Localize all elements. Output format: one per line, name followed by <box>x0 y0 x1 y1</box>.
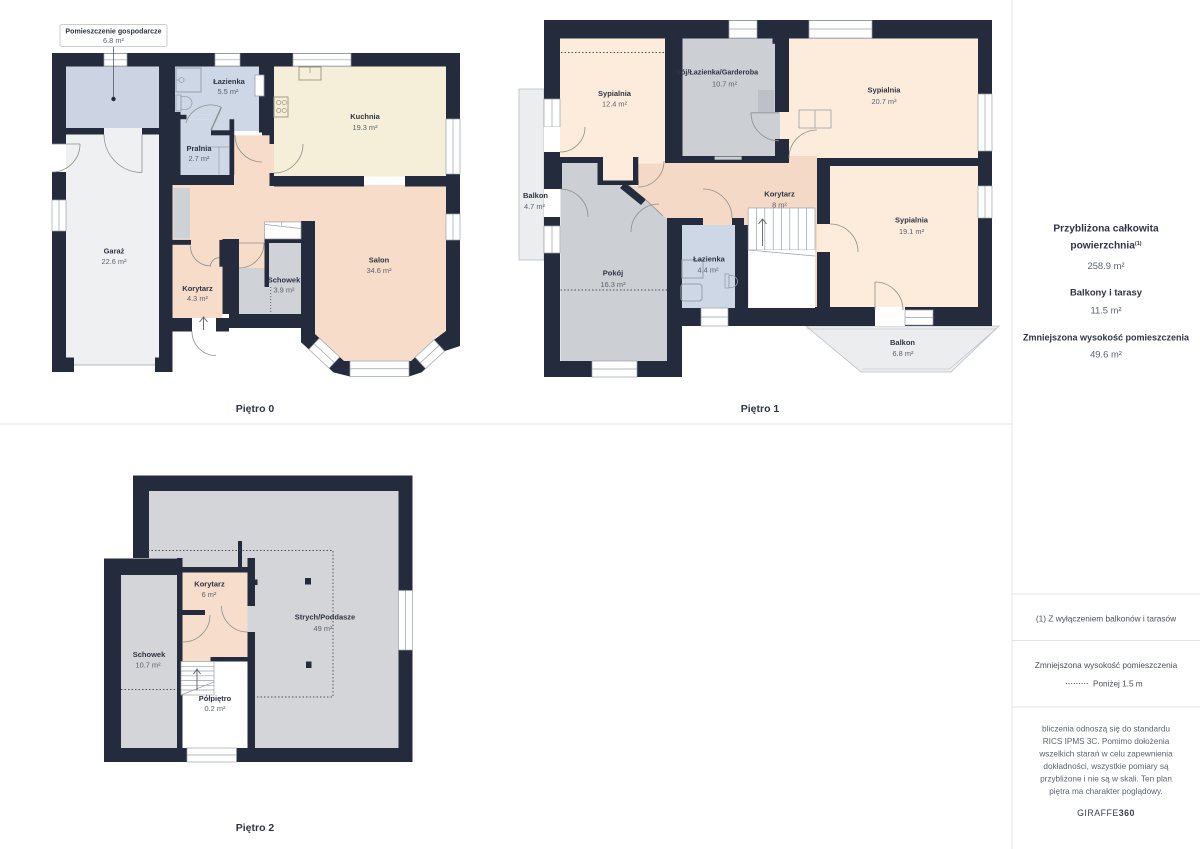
svg-text:10.7 m²: 10.7 m² <box>712 80 738 89</box>
svg-text:Balkon: Balkon <box>523 191 548 200</box>
svg-text:Piętro 1: Piętro 1 <box>741 403 780 415</box>
svg-text:Sypialnia: Sypialnia <box>895 216 929 225</box>
svg-text:19.3 m²: 19.3 m² <box>352 123 378 132</box>
svg-text:Łazienka: Łazienka <box>213 77 246 86</box>
svg-text:12.4 m²: 12.4 m² <box>602 100 628 109</box>
svg-text:Korytarz: Korytarz <box>764 190 795 199</box>
svg-text:Piętro 0: Piętro 0 <box>236 403 275 415</box>
svg-text:Przybliżona całkowita: Przybliżona całkowita <box>1053 224 1159 235</box>
svg-text:16.3 m²: 16.3 m² <box>600 280 626 289</box>
svg-text:Sypialnia: Sypialnia <box>868 86 902 95</box>
svg-text:Schowek: Schowek <box>133 650 166 659</box>
svg-text:Kuchnia: Kuchnia <box>350 112 380 121</box>
svg-text:10.7 m²: 10.7 m² <box>135 661 161 670</box>
svg-text:34.6 m²: 34.6 m² <box>366 266 392 275</box>
svg-text:5.5 m²: 5.5 m² <box>218 87 239 96</box>
svg-text:Zmniejszona wysokość pomieszcz: Zmniejszona wysokość pomieszczenia <box>1023 333 1190 343</box>
svg-text:Salon: Salon <box>369 256 390 265</box>
svg-text:11.5 m²: 11.5 m² <box>1090 305 1121 316</box>
svg-text:49.6 m²: 49.6 m² <box>1090 349 1122 360</box>
svg-text:49 m²: 49 m² <box>314 624 333 633</box>
svg-text:Korytarz: Korytarz <box>194 580 225 589</box>
svg-text:20.7 m²: 20.7 m² <box>871 97 897 106</box>
svg-text:kój/Łazienka/Garderoba: kój/Łazienka/Garderoba <box>677 68 759 77</box>
svg-text:4.3 m²: 4.3 m² <box>187 294 208 303</box>
svg-text:RICS IPMS 3C. Pomimo dołożenia: RICS IPMS 3C. Pomimo dołożenia <box>1043 737 1170 746</box>
svg-text:Pralnia: Pralnia <box>186 144 212 153</box>
svg-text:Zmniejszona wysokość pomieszcz: Zmniejszona wysokość pomieszczenia <box>1035 660 1178 670</box>
svg-text:Strych/Poddasze: Strych/Poddasze <box>295 613 355 622</box>
svg-text:Piętro 2: Piętro 2 <box>236 822 275 834</box>
svg-text:6.8 m²: 6.8 m² <box>893 349 914 358</box>
svg-text:Łazienka: Łazienka <box>693 255 726 264</box>
svg-text:8 m²: 8 m² <box>772 201 787 210</box>
svg-text:dokładności, wszystkie pomiary: dokładności, wszystkie pomiary są <box>1043 762 1169 771</box>
svg-text:6 m²: 6 m² <box>202 590 217 599</box>
svg-text:Schowek: Schowek <box>268 276 301 285</box>
svg-text:Balkony i tarasy: Balkony i tarasy <box>1070 287 1143 298</box>
svg-text:4.7 m²: 4.7 m² <box>524 202 545 211</box>
svg-text:Półpiętro: Półpiętro <box>199 694 232 703</box>
svg-text:powierzchnia(1): powierzchnia(1) <box>1070 241 1141 252</box>
svg-text:Pokój: Pokój <box>603 269 623 278</box>
svg-text:przybliżone i nie są w skali.: przybliżone i nie są w skali. Ten plan <box>1040 775 1172 784</box>
svg-text:bliczenia odnoszą się do stand: bliczenia odnoszą się do standardu <box>1042 725 1170 734</box>
svg-text:wszelkich starań w celu zapewn: wszelkich starań w celu zapewnienia <box>1038 750 1173 759</box>
svg-text:Balkon: Balkon <box>890 338 915 347</box>
svg-text:Korytarz: Korytarz <box>182 284 213 293</box>
svg-text:piętra ma charakter poglądowy.: piętra ma charakter poglądowy. <box>1049 787 1163 796</box>
svg-text:2.7 m²: 2.7 m² <box>189 154 210 163</box>
svg-text:6.8 m²: 6.8 m² <box>103 36 124 45</box>
svg-text:Poniżej 1.5 m: Poniżej 1.5 m <box>1093 679 1143 688</box>
svg-text:258.9 m²: 258.9 m² <box>1088 260 1125 271</box>
svg-text:4.4 m²: 4.4 m² <box>698 266 719 275</box>
svg-text:0.2 m²: 0.2 m² <box>205 704 226 713</box>
svg-text:Garaż: Garaż <box>104 247 125 256</box>
svg-text:19.1 m²: 19.1 m² <box>899 227 925 236</box>
svg-text:(1) Z wyłączeniem balkonów i t: (1) Z wyłączeniem balkonów i tarasów <box>1036 614 1177 624</box>
svg-text:Sypialnia: Sypialnia <box>598 89 632 98</box>
svg-text:GIRAFFE360: GIRAFFE360 <box>1077 808 1135 818</box>
svg-text:Pomieszczenie gospodarcze: Pomieszczenie gospodarcze <box>65 28 161 36</box>
svg-text:3.9 m²: 3.9 m² <box>274 286 295 295</box>
svg-text:22.6 m²: 22.6 m² <box>101 257 127 266</box>
